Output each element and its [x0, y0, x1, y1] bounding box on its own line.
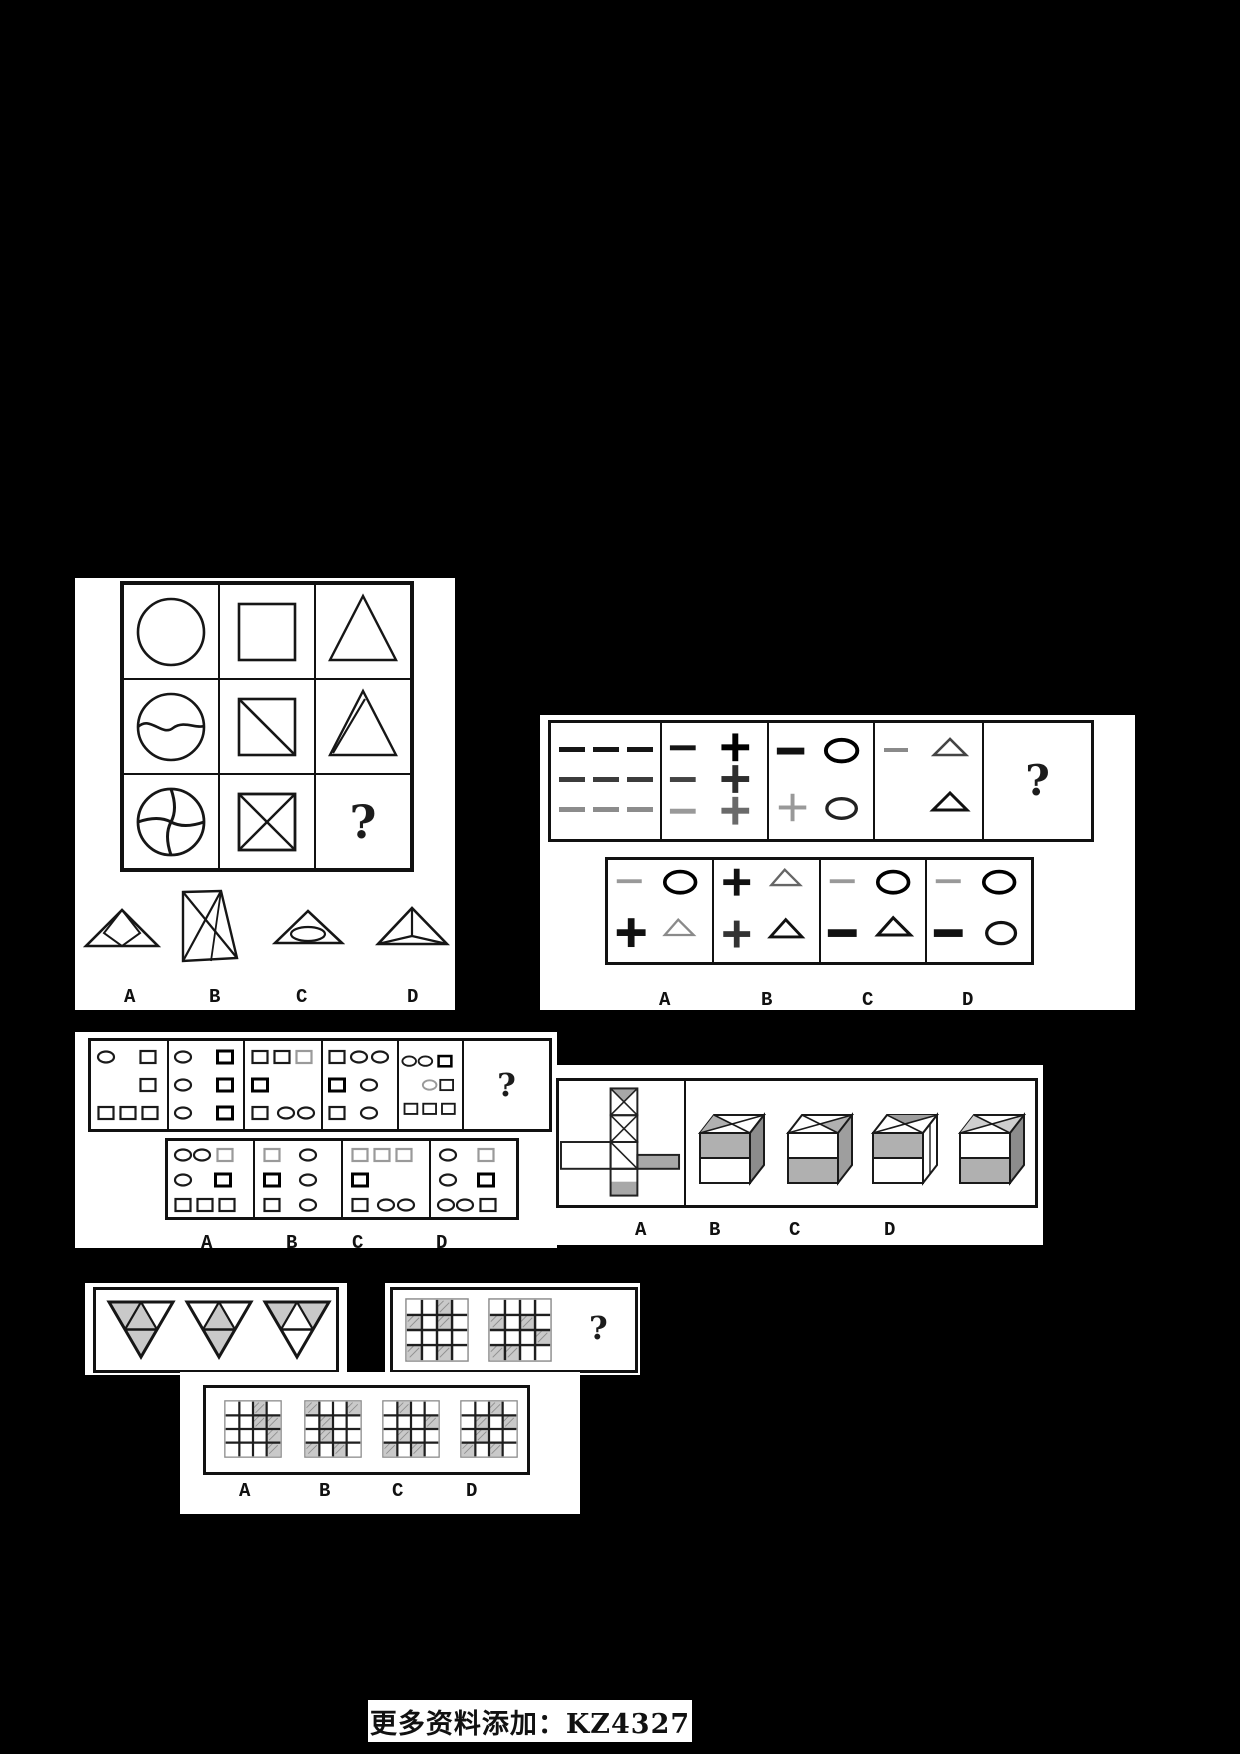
option-label-a: A [239, 1482, 250, 1501]
footer-strip: 更多资料添加：KZ4327 [368, 1700, 692, 1742]
cube-option-4-icon [948, 1095, 1032, 1187]
dashes-and-plusses-icon [662, 725, 767, 837]
option-label-c: C [296, 988, 307, 1007]
shaded-triangle-1 [106, 1297, 176, 1361]
matrix-cell-question: ? [315, 774, 411, 869]
puzzle3-cell-3 [245, 1041, 323, 1129]
option-c-triangle-ellipse-icon [272, 908, 345, 946]
option-label-b: B [761, 991, 772, 1010]
puzzle2-cell-question: ? [984, 723, 1091, 839]
option-a-figure [608, 862, 712, 960]
option-grid-c [382, 1400, 440, 1458]
puzzle2-option-b [714, 860, 821, 962]
nine-dashes-icon [553, 725, 659, 837]
triangle-icon [318, 588, 408, 676]
option-b-figure [714, 862, 819, 960]
option-label-d: D [884, 1221, 895, 1240]
question-mark: ? [350, 799, 377, 845]
puzzle3-panel: ? [75, 1032, 557, 1248]
matrix-cell-circle-wave [123, 679, 219, 774]
puzzle5-grids-box: ? [390, 1287, 638, 1373]
puzzle4-net-cell [559, 1081, 686, 1205]
option-label-d: D [407, 988, 418, 1007]
option-label-d: D [962, 991, 973, 1010]
option-a-triangle-diamond-icon [83, 907, 161, 949]
puzzle2-option-c [821, 860, 927, 962]
puzzle3-cell-1 [91, 1041, 169, 1129]
puzzle3-options-strip [165, 1138, 519, 1220]
question-mark: ? [589, 1312, 608, 1344]
cube-option-3-icon [861, 1095, 945, 1187]
puzzle4-panel: A B C D [553, 1065, 1043, 1245]
shape-cell [92, 1043, 166, 1127]
puzzle2-option-a [608, 860, 714, 962]
puzzle2-option-d [927, 860, 1031, 962]
square-icon [222, 588, 312, 676]
question-grid-2 [488, 1298, 552, 1362]
option-a-figure [171, 1143, 251, 1215]
option-grid-d [460, 1400, 518, 1458]
triangle-inner-line-icon [318, 683, 408, 771]
circle-icon [126, 588, 216, 676]
option-label-a: A [201, 1234, 212, 1253]
circle-pinwheel-icon [126, 778, 216, 866]
puzzle3-option-a [168, 1141, 255, 1217]
option-grid-b [304, 1400, 362, 1458]
dash-triangle-triangle-icon [876, 725, 982, 837]
option-label-c: C [392, 1482, 403, 1501]
shaded-triangle-3 [262, 1297, 332, 1361]
puzzle5-triangles-panel [85, 1283, 347, 1375]
option-d-figure [927, 862, 1031, 960]
footer-text: 更多资料添加：KZ4327 [370, 1702, 690, 1741]
cube-option-2-icon [776, 1095, 860, 1187]
shape-cell [169, 1043, 243, 1127]
shaded-triangle-2 [184, 1297, 254, 1361]
option-label-a: A [124, 988, 135, 1007]
option-label-b: B [286, 1234, 297, 1253]
option-label-a: A [659, 991, 670, 1010]
matrix-cell-square [219, 584, 315, 679]
option-d-figure [434, 1143, 514, 1215]
matrix-cell-square-x [219, 774, 315, 869]
shape-cell [323, 1043, 397, 1127]
option-label-d: D [436, 1234, 447, 1253]
puzzle2-cell-4 [875, 723, 984, 839]
dash-oval-plus-oval-icon [769, 725, 873, 837]
puzzle3-option-d [431, 1141, 516, 1217]
question-mark: ? [1025, 760, 1050, 802]
matrix-cell-circle-pinwheel [123, 774, 219, 869]
option-label-b: B [709, 1221, 720, 1240]
puzzle3-cell-2 [169, 1041, 245, 1129]
puzzle2-cell-1 [551, 723, 662, 839]
circle-wave-icon [126, 683, 216, 771]
document-page: ? A B C D [0, 0, 1240, 1754]
puzzle5-grids-panel: ? [385, 1283, 640, 1375]
cube-net-icon [559, 1082, 684, 1204]
matrix-cell-triangle-inner-line [315, 679, 411, 774]
option-d-triangle-pyramid-icon [375, 905, 450, 947]
puzzle5-options-box [203, 1385, 530, 1475]
option-label-c: C [862, 991, 873, 1010]
matrix-cell-square-diagonal [219, 679, 315, 774]
puzzle3-cell-question: ? [464, 1041, 549, 1129]
cube-option-1-icon [688, 1095, 772, 1187]
option-label-d: D [466, 1482, 477, 1501]
option-label-c: C [352, 1234, 363, 1253]
option-grid-a [224, 1400, 282, 1458]
option-label-a: A [635, 1221, 646, 1240]
puzzle3-question-strip: ? [88, 1038, 552, 1132]
puzzle2-panel: ? [540, 715, 1135, 1010]
puzzle2-question-strip: ? [548, 720, 1094, 842]
puzzle5-options-panel: A B C D [180, 1372, 580, 1514]
puzzle4-strip [556, 1078, 1038, 1208]
puzzle4-cubes-cell [686, 1081, 1035, 1205]
puzzle2-options-strip [605, 857, 1034, 965]
puzzle1-panel: ? A B C D [75, 578, 455, 1010]
option-c-figure [821, 862, 925, 960]
option-c-figure [346, 1143, 426, 1215]
shape-cell [399, 1043, 462, 1127]
option-label-b: B [319, 1482, 330, 1501]
puzzle3-cell-5 [399, 1041, 464, 1129]
puzzle5-triangles-box [93, 1287, 339, 1373]
option-label-b: B [209, 988, 220, 1007]
matrix-cell-circle [123, 584, 219, 679]
matrix-cell-triangle [315, 584, 411, 679]
option-b-quadrilateral-icon [177, 888, 245, 964]
option-label-c: C [789, 1221, 800, 1240]
puzzle1-matrix: ? [120, 581, 414, 872]
puzzle2-cell-2 [662, 723, 769, 839]
square-diagonal-icon [222, 683, 312, 771]
puzzle3-option-c [343, 1141, 431, 1217]
puzzle3-option-b [255, 1141, 343, 1217]
question-mark: ? [497, 1069, 516, 1101]
puzzle3-cell-4 [323, 1041, 399, 1129]
square-x-icon [222, 778, 312, 866]
question-grid-1 [405, 1298, 469, 1362]
puzzle2-cell-3 [769, 723, 875, 839]
option-b-figure [258, 1143, 338, 1215]
shape-cell [246, 1043, 320, 1127]
